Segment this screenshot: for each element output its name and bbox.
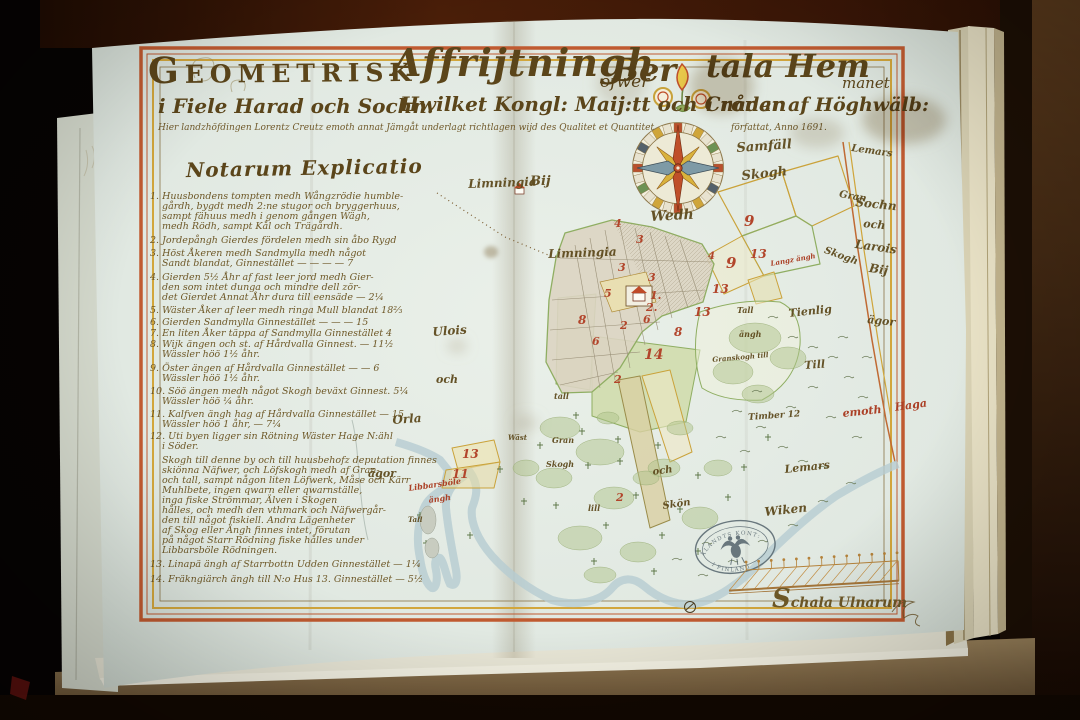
compass-rose: [633, 123, 724, 214]
map-artwork: ÅLANDTS KONT: I FINLAND: [0, 0, 1080, 720]
photograph-of-open-survey-atlas: ÅLANDTS KONT: I FINLAND 1. Huusbondens t…: [0, 0, 1080, 720]
book-background: [0, 0, 1080, 720]
